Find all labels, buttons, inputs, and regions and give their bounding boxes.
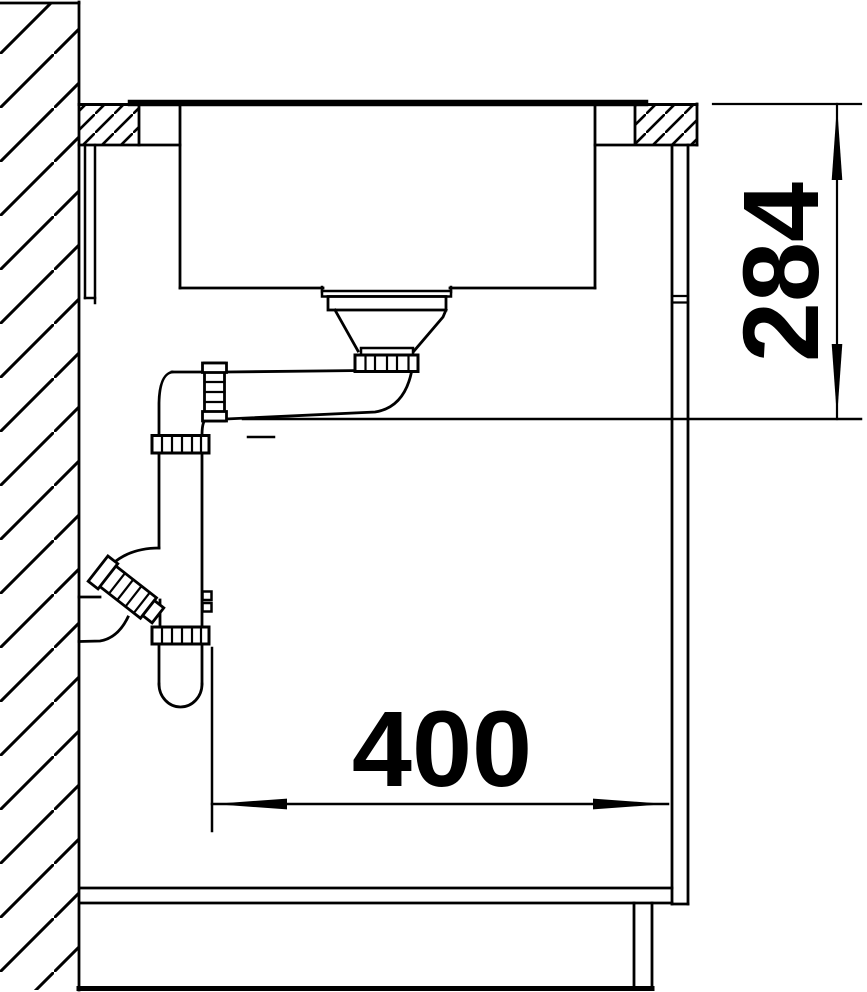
pipe-clip-lower — [203, 603, 212, 612]
wall-hatch — [0, 2, 79, 990]
pipe-top-edge — [226, 371, 360, 373]
drain-pipe-horizontal — [226, 371, 412, 438]
strainer-assembly — [322, 291, 451, 372]
base-cabinet — [79, 145, 688, 989]
pipe-clip-upper — [203, 592, 212, 601]
strainer-funnel-right — [414, 310, 446, 351]
elbow-union-nut — [203, 363, 227, 421]
drain-pipe-vertical — [159, 436, 202, 627]
dim-284-label: 284 — [720, 182, 841, 362]
wall-outlet-bottom — [79, 617, 128, 642]
pipe-compression-nut — [152, 436, 209, 454]
dimension-400: 400 — [212, 648, 668, 831]
trap-cup-bottom — [159, 684, 202, 707]
cabinet-back-rail — [85, 145, 95, 303]
drawing-canvas: 284 400 — [0, 0, 867, 992]
technical-drawing-sink-section: 284 400 — [0, 0, 867, 992]
dim-400-label: 400 — [352, 688, 532, 809]
pipe-bottom-edge — [226, 372, 412, 419]
worktop-hatch-left — [79, 104, 139, 145]
strainer-funnel-left — [335, 310, 358, 351]
elbow-inner-curve — [202, 421, 205, 436]
elbow-outer-curve — [159, 372, 172, 436]
dim-284-arrow-up — [832, 105, 843, 180]
trap-cup-nut — [152, 627, 209, 644]
strainer-body — [328, 297, 446, 311]
dim-400-arrow-left — [213, 799, 287, 810]
sink-basin — [180, 104, 595, 292]
worktop — [79, 103, 697, 145]
worktop-hatch-right — [635, 104, 697, 145]
dim-400-arrow-right — [593, 799, 667, 810]
elbow-nut-cap-bottom — [203, 412, 227, 422]
siphon-trap — [79, 548, 212, 707]
wall-section — [0, 2, 79, 990]
drain-elbow — [159, 372, 205, 436]
elbow-nut-cap-top — [203, 363, 227, 373]
